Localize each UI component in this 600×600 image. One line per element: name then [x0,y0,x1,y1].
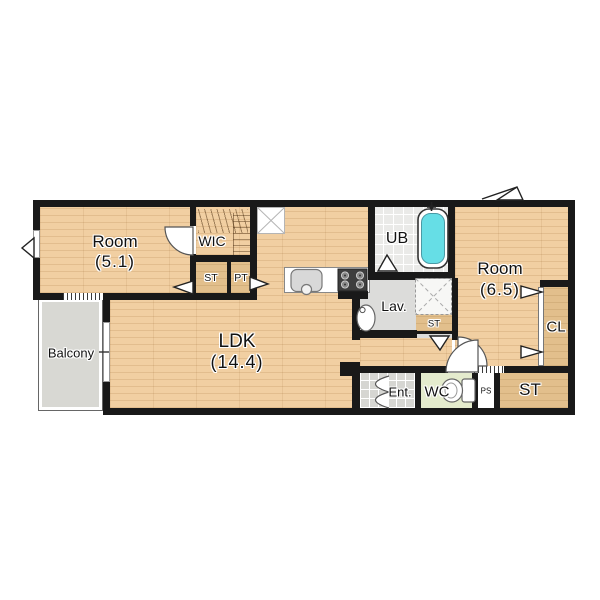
doorway [448,366,474,373]
threshold [474,366,504,373]
vent-icon [482,187,523,200]
wc-label: WC [425,384,450,401]
wall-segment [352,330,417,338]
kitchen-counter [284,267,370,293]
ub-label: UB [386,230,408,248]
pt-label: PT [234,272,247,284]
st-lower-label: ST [519,380,541,400]
wall-segment [494,372,500,408]
wall-segment [103,382,110,410]
wall-segment [568,200,575,415]
wall-segment [103,408,575,415]
wall-segment [472,372,478,408]
wall-segment [190,255,257,262]
wall-segment [452,278,458,340]
wall-segment [250,207,257,300]
window [103,322,110,382]
wall-segment [368,272,455,280]
wall-segment [338,291,368,299]
window [63,293,103,300]
wall-segment [190,207,196,226]
wall-segment [352,372,360,408]
wall-segment [448,200,455,280]
cl-sliding-door [538,287,544,366]
room2-label: Room (6.5) [477,258,522,300]
wall-segment [33,200,575,207]
floor-plan: Room (5.1) WIC ST PT LDK (14.4) Balcony … [0,0,600,600]
ldk-label: LDK (14.4) [210,332,263,372]
balcony-label: Balcony [48,346,94,361]
wall-segment [415,372,421,408]
ub-floor [373,205,452,275]
hallway-floor [360,336,452,368]
cl-label: CL [546,319,565,336]
entrance-label: Ent. [388,385,411,400]
clothes-rod-hatch [233,213,250,258]
lav-label: Lav. [381,298,406,314]
wic-label: WIC [198,233,225,249]
ps-label: PS [481,387,492,396]
wall-segment [190,254,196,293]
doorway [190,226,196,254]
wall-segment [540,280,575,287]
st-lav-label: ST [428,319,440,330]
st-upper-label: ST [204,272,217,284]
wall-segment [103,296,110,324]
wall-segment [368,200,375,280]
room1-label: Room (5.1) [92,232,137,272]
wall-segment [227,262,231,293]
window [33,230,40,258]
